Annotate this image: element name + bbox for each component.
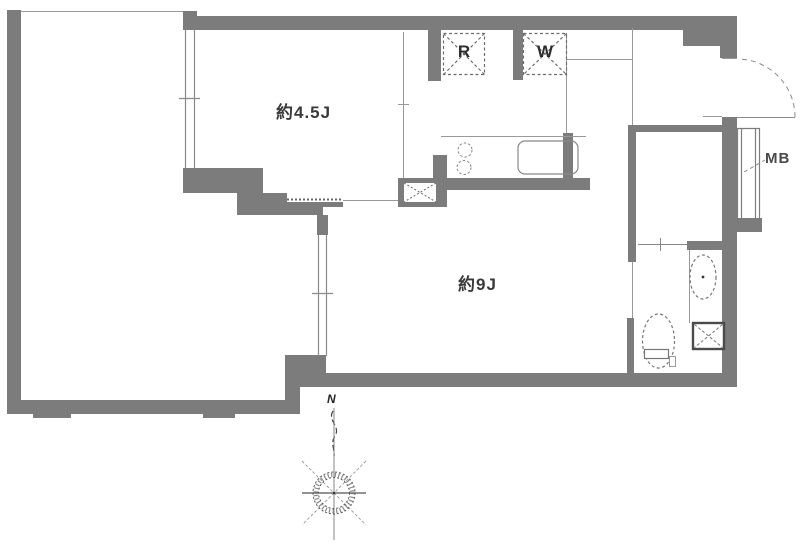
- wall-window-post: [317, 215, 328, 235]
- wall-left: [7, 10, 21, 405]
- wash-basin: [690, 255, 716, 299]
- room-9j-label: 約9J: [458, 276, 497, 293]
- toilet-handle: [670, 357, 676, 367]
- wall-entrance-stub: [720, 46, 737, 58]
- wall-top-notch: [183, 11, 197, 30]
- compass-center-dot: [333, 492, 335, 494]
- wall-balcony-bottom-notch: [33, 414, 71, 418]
- basin-drain-dot: [702, 276, 705, 279]
- kitchen-fixtures: [457, 141, 578, 175]
- wall-basin-top: [687, 241, 722, 250]
- toilet-tank: [645, 350, 669, 359]
- wall-bath-top: [628, 125, 725, 132]
- wall-bottom-step: [285, 355, 326, 387]
- toilet: [643, 314, 676, 368]
- wall-toilet-left: [627, 318, 634, 373]
- wall-above-shaft: [433, 155, 447, 178]
- meter-box: [737, 128, 765, 218]
- floor-plan: 約4.5J 約9J R W MB N: [0, 0, 806, 550]
- entrance-door: [737, 59, 795, 118]
- wall-bath-left: [628, 125, 636, 262]
- meter-box-leader-line: [744, 160, 765, 172]
- wall-bottom: [300, 373, 737, 387]
- compass-north-label: N: [327, 393, 336, 405]
- wall-entrance-corner: [683, 16, 737, 46]
- door-swing-arc: [738, 59, 795, 117]
- wall-partition-chunk: [287, 202, 323, 215]
- stove-burner-icon: [458, 143, 472, 157]
- wall-top: [197, 16, 683, 30]
- bath-door: [638, 238, 687, 251]
- wall-room45-step: [237, 193, 287, 215]
- pipe-shaft-box: [693, 323, 724, 349]
- washer-label: W: [523, 43, 567, 60]
- stove-burner-icon: [457, 161, 471, 175]
- wall-fridge-washer-divider: [513, 30, 523, 80]
- wall-mb-bottom: [733, 218, 762, 232]
- compass-rose: [302, 408, 366, 540]
- wall-room45-bottom: [183, 168, 263, 193]
- wall-kitchen-right: [563, 133, 573, 180]
- floorplan-drawing: [0, 0, 806, 550]
- wall-fridge-stub: [428, 30, 441, 81]
- meter-box-label: MB: [765, 151, 790, 166]
- wall-balcony-bottom: [7, 400, 300, 414]
- room-4.5j-label: 約4.5J: [276, 104, 331, 121]
- refrigerator-label: R: [443, 43, 485, 60]
- wall-balcony-bottom-notch2: [203, 414, 235, 418]
